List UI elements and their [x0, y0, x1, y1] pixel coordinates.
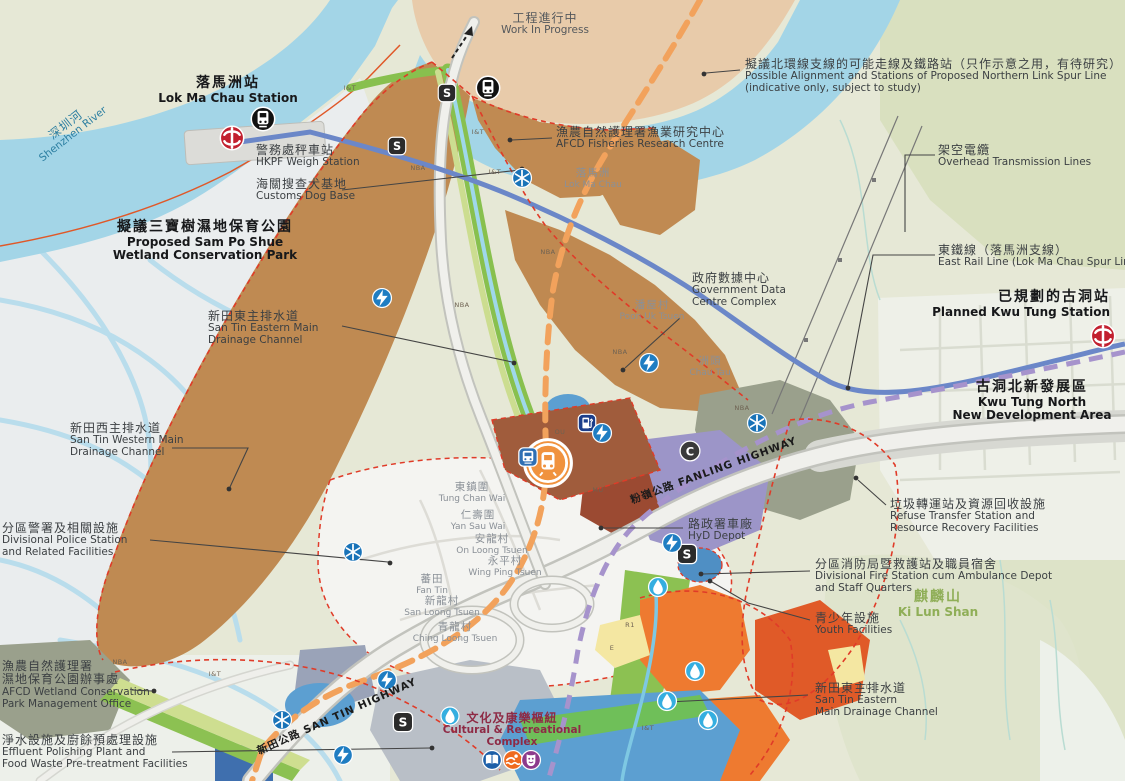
- droplet-icon: [440, 706, 460, 730]
- droplet-icon: [685, 661, 706, 686]
- lightning-icon: [333, 745, 354, 770]
- parcel-code: NBA: [734, 404, 749, 412]
- svg-text:C: C: [686, 444, 694, 458]
- parcel-code: MU: [592, 486, 603, 494]
- parcel-code: I&T: [344, 84, 356, 92]
- parcel-code: NBA: [612, 348, 627, 356]
- parcel-code: NBA: [540, 248, 555, 256]
- parcel-code: R1: [625, 621, 635, 629]
- parcel-code: OU: [555, 428, 566, 436]
- droplet-icon: [648, 577, 669, 602]
- lightning-icon: [377, 670, 398, 695]
- snowflake-icon: [512, 168, 533, 193]
- interchange-icon: C: [679, 440, 701, 466]
- parcel-code: I&T: [209, 670, 221, 678]
- book-icon: [482, 750, 503, 775]
- station-icon: [250, 106, 276, 136]
- s-badge-icon: S: [437, 83, 457, 107]
- lightning-icon: [662, 533, 683, 558]
- san-tin-technopole-plan-map: SSSSC I&TNBAI&TI&TNBANBANBANBAMUOUR1ENBA…: [0, 0, 1125, 781]
- droplet-icon: [657, 691, 678, 716]
- snowflake-icon: [343, 542, 364, 567]
- lightning-icon: [639, 353, 660, 378]
- droplet-icon: [698, 710, 719, 735]
- lightning-icon: [592, 423, 613, 448]
- svg-text:S: S: [683, 548, 692, 562]
- parcel-code: I&T: [642, 724, 654, 732]
- snowflake-icon: [272, 710, 293, 735]
- s-badge-icon: S: [387, 136, 407, 160]
- theatre-icon: [521, 750, 542, 775]
- s-badge-icon: S: [392, 711, 414, 737]
- parcel-code: I&T: [489, 168, 501, 176]
- lightning-icon: [372, 288, 393, 313]
- basemap-graphic: [0, 0, 1125, 781]
- station-icon: [475, 75, 501, 105]
- parcel-code: NBA: [112, 658, 127, 666]
- snowflake-icon: [747, 413, 768, 438]
- svg-text:S: S: [399, 716, 408, 730]
- parcel-code: I&T: [857, 683, 869, 691]
- parcel-code: NBA: [410, 164, 425, 172]
- parcel-code: I&T: [472, 128, 484, 136]
- mtr-icon: [219, 125, 245, 155]
- svg-text:S: S: [393, 140, 401, 153]
- parcel-code: E: [610, 644, 615, 652]
- bus-icon: [518, 447, 539, 472]
- parcel-code: NBA: [454, 301, 469, 309]
- svg-text:S: S: [443, 87, 451, 100]
- mtr-icon: [1090, 323, 1116, 353]
